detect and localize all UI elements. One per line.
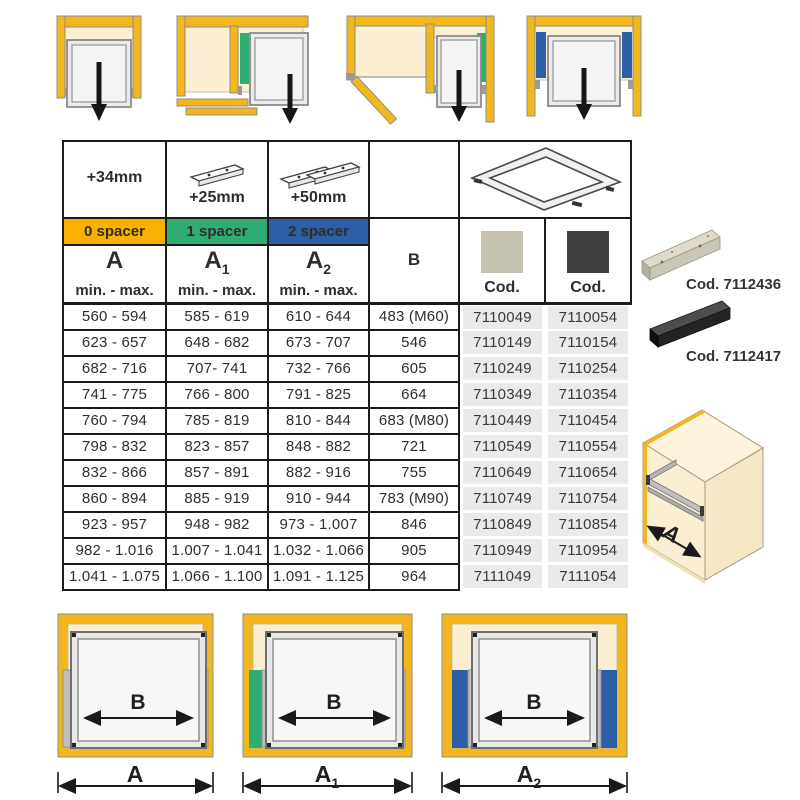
table-row: 682 - 716707- 741732 - 76660571102497110… — [63, 356, 631, 382]
table-row: 982 - 1.0161.007 - 1.0411.032 - 1.066905… — [63, 538, 631, 564]
cell-a2: 610 - 644 — [268, 303, 369, 330]
spacer-badge-0: 0 spacer — [63, 218, 166, 245]
cell-a: 760 - 794 — [63, 408, 166, 434]
frame-product-image — [459, 141, 631, 218]
cell-b: 605 — [369, 356, 459, 382]
outer-dim-label: A2 — [517, 761, 542, 791]
cell-a1: 823 - 857 — [166, 434, 268, 460]
cell-a1: 707- 741 — [166, 356, 268, 382]
cell-b: 546 — [369, 330, 459, 356]
table-row: 1.041 - 1.0751.066 - 1.1001.091 - 1.1259… — [63, 564, 631, 590]
range-label: min. - max. — [64, 282, 165, 299]
cell-a2: 882 - 916 — [268, 460, 369, 486]
table-row: 741 - 775766 - 800791 - 8256647110349711… — [63, 382, 631, 408]
cell-a1: 766 - 800 — [166, 382, 268, 408]
open-door — [351, 76, 396, 124]
col-header-34mm: +34mm — [63, 141, 166, 218]
cell-cod2: 7110654 — [545, 460, 631, 486]
catalog-page: +34mm +25mm — [0, 0, 800, 800]
cell-a: 741 - 775 — [63, 382, 166, 408]
table-row: 860 - 894885 - 919910 - 944783 (M90)7110… — [63, 486, 631, 512]
cell-a2: 791 - 825 — [268, 382, 369, 408]
inner-dim-label: B — [130, 691, 145, 714]
table-row: 923 - 957948 - 982973 - 1.00784671108497… — [63, 512, 631, 538]
cell-b: 964 — [369, 564, 459, 590]
cell-a1: 648 - 682 — [166, 330, 268, 356]
cell-cod2: 7110754 — [545, 486, 631, 512]
product-code-dark: Cod. 7112417 — [686, 348, 800, 365]
col-header-b: B — [369, 218, 459, 303]
cell-cod2: 7110954 — [545, 538, 631, 564]
col-header-a: A min. - max. — [63, 245, 166, 303]
bottom-dimension-diagrams: B A B A1 — [0, 600, 800, 800]
cell-a: 1.041 - 1.075 — [63, 564, 166, 590]
diagram-cabinet-basic — [57, 16, 141, 121]
cell-cod1: 7111049 — [459, 564, 545, 590]
diagram-dim-a1: B A1 — [243, 614, 412, 793]
cell-a: 923 - 957 — [63, 512, 166, 538]
cell-a: 560 - 594 — [63, 303, 166, 330]
range-label: min. - max. — [269, 282, 368, 299]
table-row: 832 - 866857 - 891882 - 9167557110649711… — [63, 460, 631, 486]
finish-swatch-dark — [567, 231, 609, 273]
spacer-strip-green — [240, 33, 249, 84]
spacer-strip-green — [249, 670, 262, 748]
cell-a: 623 - 657 — [63, 330, 166, 356]
cell-a: 982 - 1.016 — [63, 538, 166, 564]
cell-b: 783 (M90) — [369, 486, 459, 512]
diagram-cabinet-hinged-door — [346, 16, 494, 124]
diagram-dim-a: B A — [58, 614, 213, 793]
cell-cod1: 7110049 — [459, 303, 545, 330]
cell-a2: 732 - 766 — [268, 356, 369, 382]
cabinet-3d-diagram: A — [630, 395, 800, 600]
col-header-25mm: +25mm — [166, 141, 268, 218]
cell-cod2: 7110354 — [545, 382, 631, 408]
top-installation-diagrams — [0, 0, 800, 132]
cell-cod1: 7110449 — [459, 408, 545, 434]
outer-dim-label: A1 — [315, 761, 340, 791]
size-table-body: 560 - 594585 - 619610 - 644483 (M60)7110… — [63, 303, 631, 590]
cell-a2: 673 - 707 — [268, 330, 369, 356]
cell-cod1: 7110749 — [459, 486, 545, 512]
cell-b: 683 (M80) — [369, 408, 459, 434]
diagram-cabinet-sliding-doors — [177, 16, 308, 124]
cell-a1: 1.066 - 1.100 — [166, 564, 268, 590]
cell-cod2: 7110254 — [545, 356, 631, 382]
offset-label: +34mm — [64, 169, 165, 191]
cell-cod1: 7110249 — [459, 356, 545, 382]
cell-a2: 848 - 882 — [268, 434, 369, 460]
offset-label: +50mm — [269, 189, 368, 211]
cell-a: 860 - 894 — [63, 486, 166, 512]
cell-a1: 948 - 982 — [166, 512, 268, 538]
cell-cod1: 7110549 — [459, 434, 545, 460]
one-spacer-icon — [167, 149, 267, 189]
cell-a1: 785 - 819 — [166, 408, 268, 434]
table-row: 760 - 794785 - 819810 - 844683 (M80)7110… — [63, 408, 631, 434]
cell-a1: 585 - 619 — [166, 303, 268, 330]
cell-a: 798 - 832 — [63, 434, 166, 460]
col-header-a1: A1 min. - max. — [166, 245, 268, 303]
cell-a1: 857 - 891 — [166, 460, 268, 486]
cell-b: 755 — [369, 460, 459, 486]
cell-b: 483 (M60) — [369, 303, 459, 330]
product-code-light: Cod. 7112436 — [686, 276, 800, 293]
cell-cod2: 7110454 — [545, 408, 631, 434]
table-row: 798 - 832823 - 857848 - 8827217110549711… — [63, 434, 631, 460]
cell-a2: 1.032 - 1.066 — [268, 538, 369, 564]
cell-b: 905 — [369, 538, 459, 564]
cell-cod2: 7110554 — [545, 434, 631, 460]
spacer-strip-blue — [452, 670, 468, 748]
two-spacer-icon — [269, 149, 368, 189]
diagram-cabinet-two-spacers — [527, 16, 641, 120]
cell-cod1: 7110649 — [459, 460, 545, 486]
cell-a2: 1.091 - 1.125 — [268, 564, 369, 590]
col-header-cod-light: Cod. — [459, 218, 545, 303]
cell-cod2: 7110154 — [545, 330, 631, 356]
spacer-strip-blue — [601, 670, 617, 748]
cell-cod1: 7110949 — [459, 538, 545, 564]
size-table: +34mm +25mm — [62, 140, 632, 591]
cell-b: 721 — [369, 434, 459, 460]
cell-cod1: 7110149 — [459, 330, 545, 356]
cell-cod1: 7110849 — [459, 512, 545, 538]
col-header-a2: A2 min. - max. — [268, 245, 369, 303]
cell-a: 832 - 866 — [63, 460, 166, 486]
col-header-cod-dark: Cod. — [545, 218, 631, 303]
outer-dim-label: A — [127, 761, 144, 787]
spacer-badge-2: 2 spacer — [268, 218, 369, 245]
col-header-50mm: +50mm — [268, 141, 369, 218]
col-header-b-top — [369, 141, 459, 218]
cell-a2: 973 - 1.007 — [268, 512, 369, 538]
inner-dim-label: B — [526, 691, 541, 714]
sliding-door — [186, 108, 257, 115]
offset-label: +25mm — [167, 189, 267, 211]
cell-a1: 1.007 - 1.041 — [166, 538, 268, 564]
pullout-frame-icon — [460, 142, 630, 212]
cell-cod1: 7110349 — [459, 382, 545, 408]
cell-a2: 910 - 944 — [268, 486, 369, 512]
spacer-badge-1: 1 spacer — [166, 218, 268, 245]
cod-label: Cod. — [546, 279, 630, 297]
spacer-strip-blue — [622, 32, 632, 78]
cell-cod2: 7110854 — [545, 512, 631, 538]
table-row: 623 - 657648 - 682673 - 7075467110149711… — [63, 330, 631, 356]
sliding-door — [177, 99, 248, 106]
cell-a: 682 - 716 — [63, 356, 166, 382]
spacer-strip-blue — [536, 32, 546, 78]
diagram-dim-a2: B A2 — [442, 614, 627, 793]
cell-b: 664 — [369, 382, 459, 408]
cod-label: Cod. — [460, 279, 544, 297]
cell-cod2: 7111054 — [545, 564, 631, 590]
range-label: min. - max. — [167, 282, 267, 299]
table-row: 560 - 594585 - 619610 - 644483 (M60)7110… — [63, 303, 631, 330]
inner-dim-label: B — [326, 691, 341, 714]
cell-b: 846 — [369, 512, 459, 538]
cell-a1: 885 - 919 — [166, 486, 268, 512]
cell-cod2: 7110054 — [545, 303, 631, 330]
spacer-product-dark — [650, 301, 730, 347]
cell-a2: 810 - 844 — [268, 408, 369, 434]
spacer-product-light — [642, 230, 720, 280]
finish-swatch-light — [481, 231, 523, 273]
